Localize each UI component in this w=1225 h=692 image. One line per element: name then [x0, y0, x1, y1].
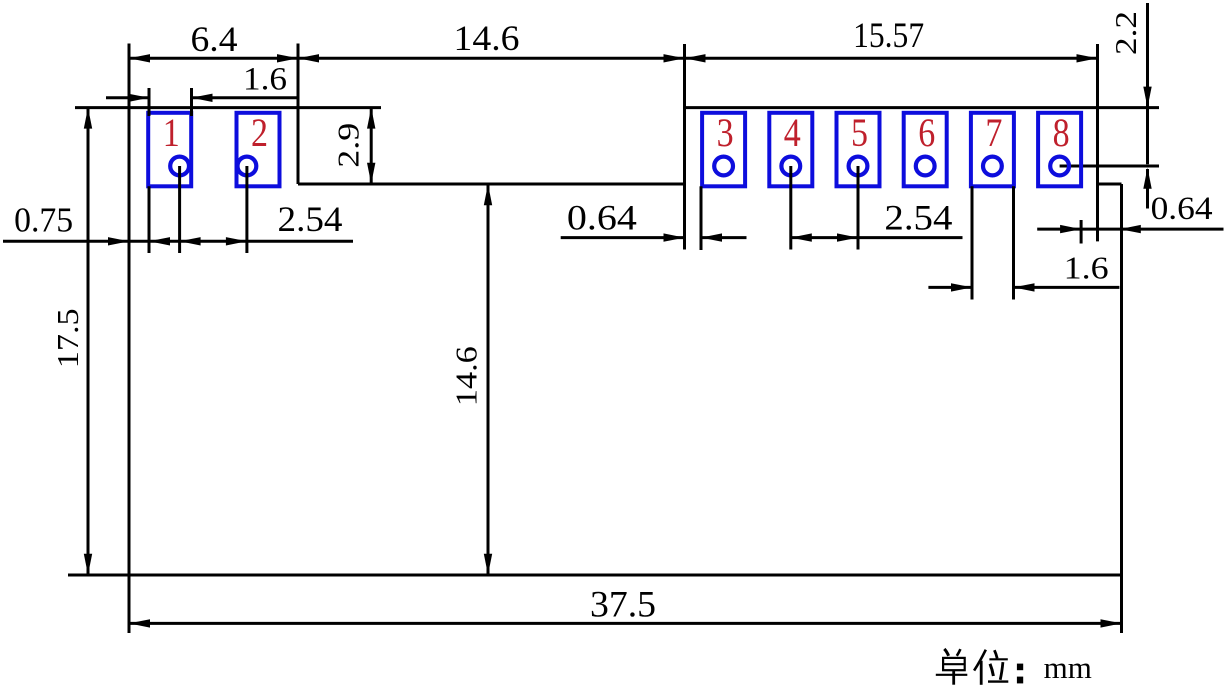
svg-text:7: 7: [985, 110, 1002, 155]
svg-text:1.6: 1.6: [243, 62, 287, 98]
svg-text:mm: mm: [1044, 650, 1092, 685]
svg-text:5: 5: [851, 110, 868, 155]
svg-text:2.2: 2.2: [1108, 11, 1143, 55]
svg-text:1: 1: [163, 110, 180, 155]
svg-text:14.6: 14.6: [454, 18, 520, 58]
svg-text:37.5: 37.5: [590, 584, 656, 625]
svg-text:6.4: 6.4: [191, 19, 238, 59]
svg-text:2: 2: [251, 110, 268, 155]
svg-text:17.5: 17.5: [50, 308, 85, 368]
svg-text:3: 3: [717, 110, 734, 155]
svg-text:0.75: 0.75: [14, 201, 73, 240]
svg-text:2.54: 2.54: [278, 199, 343, 239]
svg-text:2.9: 2.9: [330, 123, 365, 168]
svg-text:14.6: 14.6: [448, 346, 483, 406]
svg-text:15.57: 15.57: [853, 15, 924, 55]
svg-text:0.64: 0.64: [567, 198, 637, 238]
svg-text:1.6: 1.6: [1064, 249, 1109, 285]
svg-text:2.54: 2.54: [884, 198, 952, 238]
svg-text:8: 8: [1053, 110, 1070, 155]
svg-text:0.64: 0.64: [1151, 191, 1213, 227]
svg-text:4: 4: [784, 110, 801, 155]
svg-text:6: 6: [918, 110, 935, 155]
